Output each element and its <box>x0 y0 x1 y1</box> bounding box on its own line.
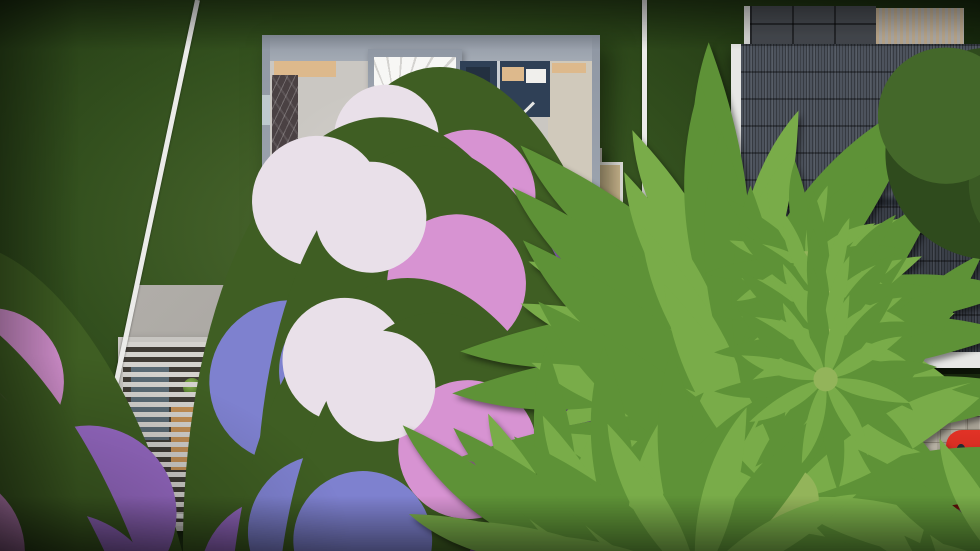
fence-post <box>279 519 286 526</box>
pool-tile-border <box>283 505 546 516</box>
fence-post <box>634 523 641 530</box>
entry-door <box>552 63 586 73</box>
wall-pier <box>540 276 560 287</box>
dining-chair <box>324 253 338 263</box>
shower-glass <box>497 61 500 117</box>
indoor-plant <box>516 167 534 185</box>
stepping-stone <box>552 482 599 508</box>
outdoor-sofa <box>318 286 395 315</box>
villa-floor-plan <box>262 35 600 287</box>
sliding-glass-door <box>448 278 540 285</box>
stepping-stone <box>552 447 599 473</box>
white-car <box>722 432 878 499</box>
outdoor-armchair <box>286 316 320 349</box>
fence-post <box>861 411 868 418</box>
entry-hall-floor <box>548 61 592 276</box>
planter-box <box>597 162 623 290</box>
sun-lounger <box>214 473 270 500</box>
shower-mat <box>466 67 490 107</box>
sun-lounger <box>214 431 270 458</box>
stepping-stone <box>612 489 632 519</box>
armchair <box>456 248 480 271</box>
bath-vanity <box>502 67 524 81</box>
pool-tile-border <box>535 349 546 516</box>
sun-lounger <box>214 389 270 416</box>
driveway-fence-top <box>643 410 980 416</box>
side-table <box>418 187 435 202</box>
spiral-staircase <box>374 57 456 113</box>
roof-gutter <box>731 352 980 368</box>
neighbor-roof-terrace <box>876 8 964 44</box>
doorway-lintel <box>470 147 542 160</box>
east-wall <box>592 35 600 287</box>
dining-table <box>318 213 378 255</box>
fence-post <box>101 514 108 521</box>
roof-shadow <box>731 368 980 374</box>
sun-lounger <box>214 347 270 374</box>
pool-tile-border <box>283 349 546 360</box>
neighbor-roof-edge <box>744 6 750 44</box>
kitchen-island <box>272 155 376 183</box>
outdoor-coffee-table <box>333 320 377 349</box>
west-wall <box>262 35 270 287</box>
neighbor-flat-roof <box>750 6 876 44</box>
stepping-stone <box>552 383 599 409</box>
sofa <box>431 176 482 205</box>
shower-head <box>472 91 478 97</box>
pergola-lounge <box>118 337 215 531</box>
bathroom <box>460 61 550 117</box>
armchair <box>431 248 455 271</box>
outdoor-armchair <box>397 316 431 349</box>
side-mirror <box>755 428 765 434</box>
red-car <box>946 430 980 510</box>
dining-chair <box>342 205 356 215</box>
swimming-pool-water <box>294 360 535 505</box>
stepping-stone <box>612 447 632 483</box>
wall-pier <box>262 274 276 287</box>
utility-unit <box>917 388 980 412</box>
stepping-stone <box>552 415 599 441</box>
dining-chair <box>380 225 390 241</box>
bath-sink <box>526 69 546 83</box>
pool-tile-border <box>283 349 294 516</box>
aerial-villa-render <box>0 0 980 551</box>
fence-post <box>664 410 671 417</box>
west-window <box>262 95 270 125</box>
fence-post <box>528 521 535 528</box>
fence-post <box>643 203 650 210</box>
windshield <box>954 444 968 496</box>
neighbor-roof <box>737 44 980 364</box>
sofa <box>405 201 435 252</box>
dining-chair <box>360 253 374 263</box>
tv-sideboard <box>520 193 543 255</box>
driveway-fence-bottom <box>656 515 980 521</box>
pergola-slats <box>123 342 210 526</box>
west-window <box>262 185 270 225</box>
dining-chair <box>342 253 356 263</box>
dining-chair <box>324 205 338 215</box>
windshield <box>760 438 786 493</box>
sunroof <box>792 442 838 489</box>
rear-window <box>842 442 860 489</box>
roof-gutter <box>731 44 741 364</box>
sliding-glass-door <box>302 278 420 285</box>
stepping-stone <box>552 351 599 377</box>
side-mirror <box>755 497 765 503</box>
dining-chair <box>360 205 374 215</box>
wall-pier <box>420 276 448 287</box>
dining-chair <box>308 225 318 241</box>
